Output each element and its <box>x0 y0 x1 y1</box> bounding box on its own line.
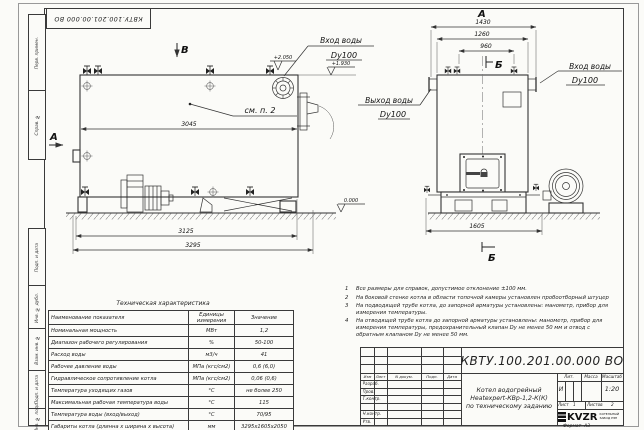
top-stamp-text: КВТУ.100.201.00.000 ВО <box>54 15 143 22</box>
spec-cell: 0,6 (6,0) <box>235 361 294 373</box>
spec-cell: Гидравлическое сопротивление котла <box>49 373 189 385</box>
tb-role-prov: Пров. <box>363 389 388 394</box>
spec-table-block: Техническая характеристика Наименование … <box>48 300 278 430</box>
note-number: 2 <box>345 295 356 302</box>
kvzr-logo-text: KVZR <box>567 412 597 423</box>
spec-cell: °С <box>189 409 235 421</box>
spec-cell: Максимальная рабочая температура воды <box>49 397 189 409</box>
spec-cell: °С <box>189 385 235 397</box>
tb-scale-value: 1:20 <box>601 385 623 393</box>
spec-cell: МПа (кгс/см2) <box>189 373 235 385</box>
margin-label: Подп. и дата <box>35 243 40 272</box>
spec-cell: % <box>189 337 235 349</box>
table-row: Номинальная мощностьМВт1,2 <box>49 325 294 337</box>
table-row: Температура уходящих газов°Сне более 250 <box>49 385 294 397</box>
tb-scale-header: Масштаб <box>601 374 623 379</box>
spec-cell: 115 <box>235 397 294 409</box>
note-item: 3На подводящей трубе котла, до запорной … <box>345 303 617 316</box>
table-row: Расход водым3/ч41 <box>49 349 294 361</box>
tb-mass-header: Масса <box>581 374 601 379</box>
margin-label: Подп. и дата <box>35 375 40 404</box>
spec-cell: не более 250 <box>235 385 294 397</box>
tb-col-izm: Изм <box>361 374 374 379</box>
tb-lit-header: Лит. <box>557 374 581 379</box>
spec-cell: Габариты котла (длинна х ширина х высота… <box>49 421 189 430</box>
spec-cell: 70/95 <box>235 409 294 421</box>
margin-label: Инв. № подл. <box>35 402 40 430</box>
note-text: На подводящей трубе котла, до запорной а… <box>356 303 617 316</box>
note-text: На отводящей трубе котла до запорной арм… <box>356 318 617 338</box>
note-text: Все размеры для справок, допустимое откл… <box>356 286 617 293</box>
note-number: 4 <box>345 318 356 338</box>
format-label: Формат А3 <box>563 424 633 429</box>
notes-list: 1Все размеры для справок, допустимое отк… <box>345 286 617 340</box>
company-name-line: ЗАВОД РЭП <box>599 417 619 421</box>
doc-name-line: по техническому заданию <box>461 403 557 411</box>
note-item: 1Все размеры для справок, допустимое отк… <box>345 286 617 293</box>
title-block: Изм Лист N докум. Подп. Дата Разраб. Про… <box>360 347 624 426</box>
tb-role-utv: Утв. <box>363 419 388 424</box>
doc-name-line: Котел водогрейный <box>461 387 557 395</box>
spec-cell: 41 <box>235 349 294 361</box>
margin-label: Справ. № <box>35 114 40 135</box>
table-row: Гидравлическое сопротивление котлаМПа (к… <box>49 373 294 385</box>
tb-role-razrab: Разраб. <box>363 381 388 386</box>
top-stamp-box: КВТУ.100.201.00.000 ВО <box>46 8 151 29</box>
format-word: Формат <box>563 424 581 429</box>
tb-col-list: Лист <box>374 374 387 379</box>
note-item: 2На боковой стенке котла в области топоч… <box>345 295 617 302</box>
drawing-sheet: .bd{fill:#fbfbf8;stroke:#333;stroke-widt… <box>0 0 644 430</box>
tb-lit-value: И <box>557 386 565 393</box>
spec-table: Наименование показателя Единицы измерени… <box>48 310 294 430</box>
spec-cell: Рабочее давление воды <box>49 361 189 373</box>
margin-label: Инв. № дубл. <box>35 293 40 323</box>
spec-cell: МПа (кгс/см2) <box>189 361 235 373</box>
tb-sheets-value: 2 <box>611 402 621 407</box>
tb-col-ndokum: N докум. <box>387 374 421 379</box>
spec-cell: Расход воды <box>49 349 189 361</box>
spec-cell: м3/ч <box>189 349 235 361</box>
table-row: Максимальная рабочая температура воды°С1… <box>49 397 294 409</box>
spec-cell: Температура воды (вход/выход) <box>49 409 189 421</box>
spec-cell: 0,06 (0,6) <box>235 373 294 385</box>
spec-header: Наименование показателя <box>49 311 189 325</box>
tb-sheet-value: 1 <box>573 402 583 407</box>
margin-label: Взам. инв. № <box>35 335 40 365</box>
note-number: 3 <box>345 303 356 316</box>
doc-name: Котел водогрейный Heatexpert-КВр-1,2-К(К… <box>461 375 557 423</box>
tb-sheets-label: Листов <box>587 402 607 407</box>
spec-cell: МВт <box>189 325 235 337</box>
kvzr-emblem-icon <box>558 412 566 422</box>
spec-cell: Температура уходящих газов <box>49 385 189 397</box>
spec-header: Единицы измерения <box>189 311 235 325</box>
tb-role-nkontr: Н.контр. <box>363 411 388 416</box>
tb-col-podp: Подп. <box>421 374 443 379</box>
tb-col-data: Дата <box>443 374 461 379</box>
company-name: КОТЕЛЬНЫЙ ЗАВОД РЭП <box>599 413 619 420</box>
margin-box-podp-data-1: Подп. и дата <box>28 228 46 287</box>
spec-cell: 50-100 <box>235 337 294 349</box>
doc-name-line: Heatexpert-КВр-1,2-К(К) <box>461 395 557 403</box>
table-row: Габариты котла (длинна х ширина х высота… <box>49 421 294 430</box>
spec-header: Значение <box>235 311 294 325</box>
margin-box-inv-podl: Инв. № подл. <box>28 408 46 426</box>
company-logo: KVZR КОТЕЛЬНЫЙ ЗАВОД РЭП <box>558 410 622 424</box>
tb-sheet-label: Лист <box>558 402 571 407</box>
margin-box-inv-dubl: Инв. № дубл. <box>28 285 46 330</box>
table-row: Температура воды (вход/выход)°С70/95 <box>49 409 294 421</box>
spec-cell: °С <box>189 397 235 409</box>
margin-box-sprav-n: Справ. № <box>28 90 46 160</box>
spec-cell: Диапазон рабочего регулирования <box>49 337 189 349</box>
doc-number: КВТУ.100.201.00.000 ВО <box>461 348 623 373</box>
table-row: Диапазон рабочего регулирования%50-100 <box>49 337 294 349</box>
table-row: Рабочее давление водыМПа (кгс/см2)0,6 (6… <box>49 361 294 373</box>
spec-table-title: Техническая характеристика <box>48 300 278 307</box>
spec-cell: мм <box>189 421 235 430</box>
note-number: 1 <box>345 286 356 293</box>
spec-cell: Номинальная мощность <box>49 325 189 337</box>
note-text: На боковой стенке котла в области топочн… <box>356 295 617 302</box>
spec-cell: 1,2 <box>235 325 294 337</box>
margin-label: Перв. примен. <box>35 37 40 69</box>
margin-box-vzam-inv: Взам. инв. № <box>28 328 46 372</box>
note-item: 4На отводящей трубе котла до запорной ар… <box>345 318 617 338</box>
tb-role-tkontr: Т.контр. <box>363 396 388 401</box>
format-value: А3 <box>584 424 590 429</box>
spec-cell: 3295х1605х2050 <box>235 421 294 430</box>
margin-box-perv-primen: Перв. примен. <box>28 14 46 92</box>
